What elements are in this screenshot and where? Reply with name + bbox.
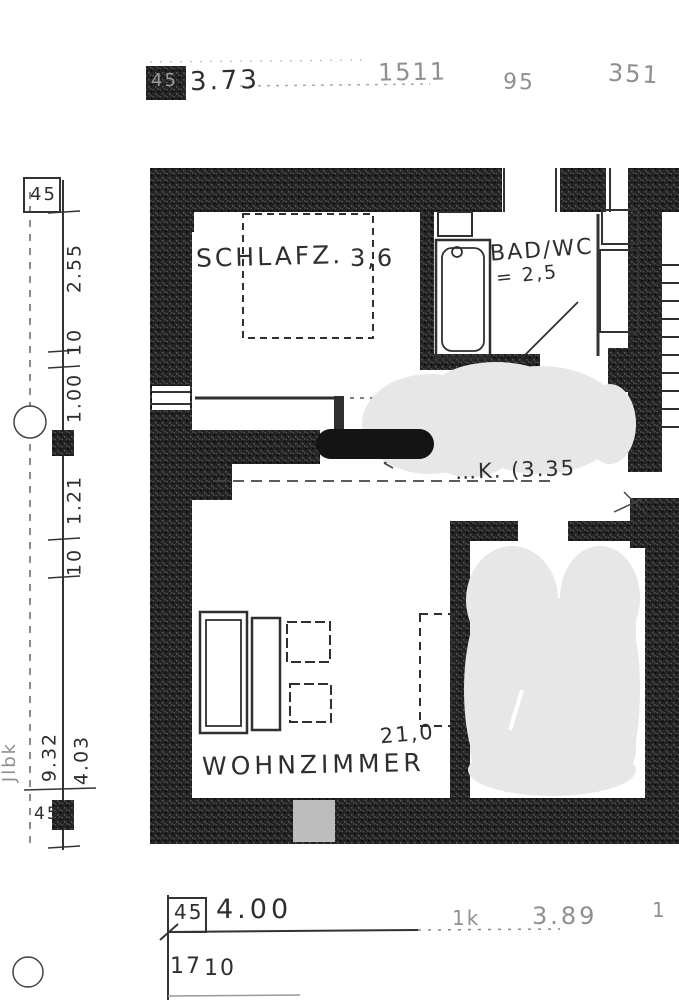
livingroom-furniture [200, 612, 452, 733]
sub-dim-label: 17 [170, 956, 202, 978]
faint-number: 1 [652, 900, 667, 920]
top-ref-box-label: 45 [151, 72, 178, 90]
bottom-dimension-label: 4.00 [216, 896, 292, 923]
room-label-wohnzimmer: WOHNZIMMER [202, 750, 425, 779]
redaction-bar [316, 429, 434, 459]
door-swing-icon [522, 302, 578, 358]
dim-total-label: 4.03 [73, 735, 92, 785]
datum-circle-icon [13, 957, 43, 987]
armchair-icon [252, 618, 280, 730]
dim-label: 2.55 [66, 243, 85, 293]
sofa-icon [200, 612, 247, 733]
redaction-blob-bottom [464, 546, 640, 796]
room-area-wohnzimmer: 21,0 [379, 722, 435, 748]
left-ref-box-label: 45 [30, 186, 57, 204]
top-dimension-label: 3.73 [190, 67, 261, 95]
faint-number: 1k [452, 908, 480, 928]
margin-scribble: Jlbk [1, 742, 19, 782]
bottom-ref-box-label: 45 [174, 902, 203, 922]
bed-icon [243, 214, 373, 338]
side-table-icon [290, 684, 331, 722]
faint-number: 351 [607, 61, 660, 88]
faint-number: 1511 [378, 59, 447, 84]
dim-label: 10 [66, 328, 85, 356]
cupboard-icon [420, 614, 452, 726]
side-table-icon [287, 622, 330, 662]
dim-label: 10 [66, 548, 85, 576]
corridor-note: …K. (3.35 [455, 458, 577, 483]
faint-number: 3.89 [532, 904, 597, 928]
sub-dim-label: 10 [204, 958, 236, 980]
bathtub-icon [436, 240, 490, 358]
scanned-floor-plan-page: 45 3.73 1511 95 351 45 2.55 10 1.00 1.21… [0, 0, 679, 1000]
floor-plan-canvas [0, 0, 679, 1000]
dim-label: 1.00 [66, 373, 85, 423]
room-area-schlafzimmer: 3,6 [350, 246, 394, 270]
sink-icon [438, 212, 472, 236]
room-label-schlafzimmer: SCHLAFZ. [196, 242, 344, 271]
faint-number: 95 [503, 71, 536, 94]
dim-label: 1.21 [66, 475, 85, 525]
left-bottom-box-label: 45 [34, 806, 60, 823]
dim-total-label: 9.32 [41, 732, 60, 782]
hatch-box [52, 430, 74, 456]
datum-circle-icon [14, 406, 46, 438]
